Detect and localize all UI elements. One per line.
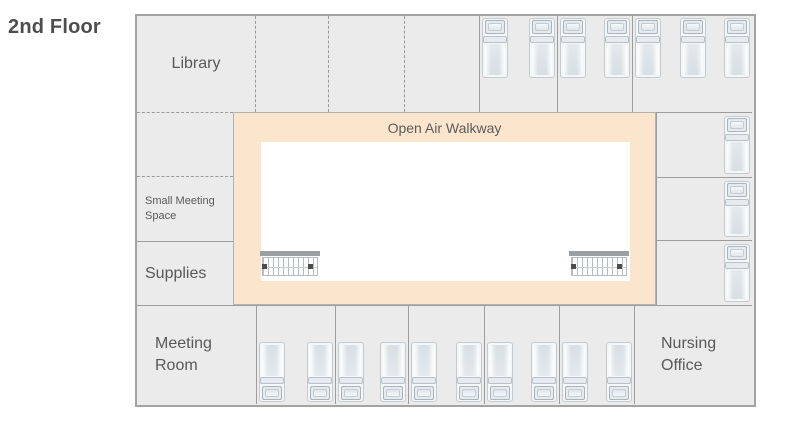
- library-divider-dashed-2: [328, 16, 329, 112]
- bed-icon: [380, 342, 406, 402]
- bed-icon: [487, 342, 513, 402]
- bed-icon: [456, 342, 482, 402]
- library-divider-dashed-3: [404, 16, 405, 112]
- supplies-label: Supplies: [145, 242, 233, 305]
- bedroom-bottom-1: [256, 306, 335, 404]
- bedroom-top-2: [557, 16, 632, 112]
- room-supplies: Supplies: [137, 242, 233, 305]
- open-air-walkway: Open Air Walkway: [233, 112, 656, 305]
- room-nursing-office: Nursing Office: [634, 306, 752, 404]
- bed-icon: [724, 181, 750, 237]
- nursing-office-label: Nursing Office: [661, 306, 752, 404]
- bed-icon: [531, 342, 557, 402]
- bedroom-right-1: [656, 112, 752, 177]
- bed-icon: [724, 244, 750, 302]
- bed-icon: [411, 342, 437, 402]
- bedroom-bottom-4: [484, 306, 559, 404]
- bed-icon: [482, 18, 508, 78]
- bedroom-right-2: [656, 177, 752, 240]
- meeting-room-label: Meeting Room: [155, 306, 256, 404]
- room-unlabeled: [137, 112, 233, 176]
- walkway-label: Open Air Walkway: [234, 120, 655, 136]
- library-divider-dashed-1: [255, 16, 256, 112]
- bedroom-top-3: [632, 16, 752, 112]
- bed-icon: [307, 342, 333, 402]
- bed-icon: [680, 18, 706, 78]
- bottom-room-row: Meeting Room Nursing Office: [137, 305, 752, 403]
- bedroom-bottom-3: [408, 306, 484, 404]
- bed-icon: [560, 18, 586, 78]
- bed-icon: [724, 116, 750, 174]
- bed-icon: [562, 342, 588, 402]
- stairs-icon: [570, 251, 628, 278]
- stairs-icon: [261, 251, 319, 278]
- floorplan-building: Library Small Meeting Space Supplies Ope…: [135, 14, 756, 407]
- room-library: Library: [137, 16, 255, 112]
- room-meeting-room: Meeting Room: [137, 306, 256, 404]
- bed-icon: [338, 342, 364, 402]
- bedroom-top-1: [479, 16, 557, 112]
- bed-icon: [606, 342, 632, 402]
- room-small-meeting-space: Small Meeting Space: [137, 176, 233, 242]
- bed-icon: [604, 18, 630, 78]
- bedroom-right-3: [656, 240, 752, 305]
- page-title: 2nd Floor: [8, 16, 101, 39]
- library-label: Library: [137, 16, 255, 112]
- bed-icon: [529, 18, 555, 78]
- courtyard: [261, 142, 630, 281]
- bed-icon: [724, 18, 750, 78]
- bed-icon: [635, 18, 661, 78]
- bed-icon: [259, 342, 285, 402]
- small-meeting-space-label: Small Meeting Space: [145, 176, 233, 241]
- bedroom-bottom-5: [559, 306, 634, 404]
- bedroom-bottom-2: [335, 306, 408, 404]
